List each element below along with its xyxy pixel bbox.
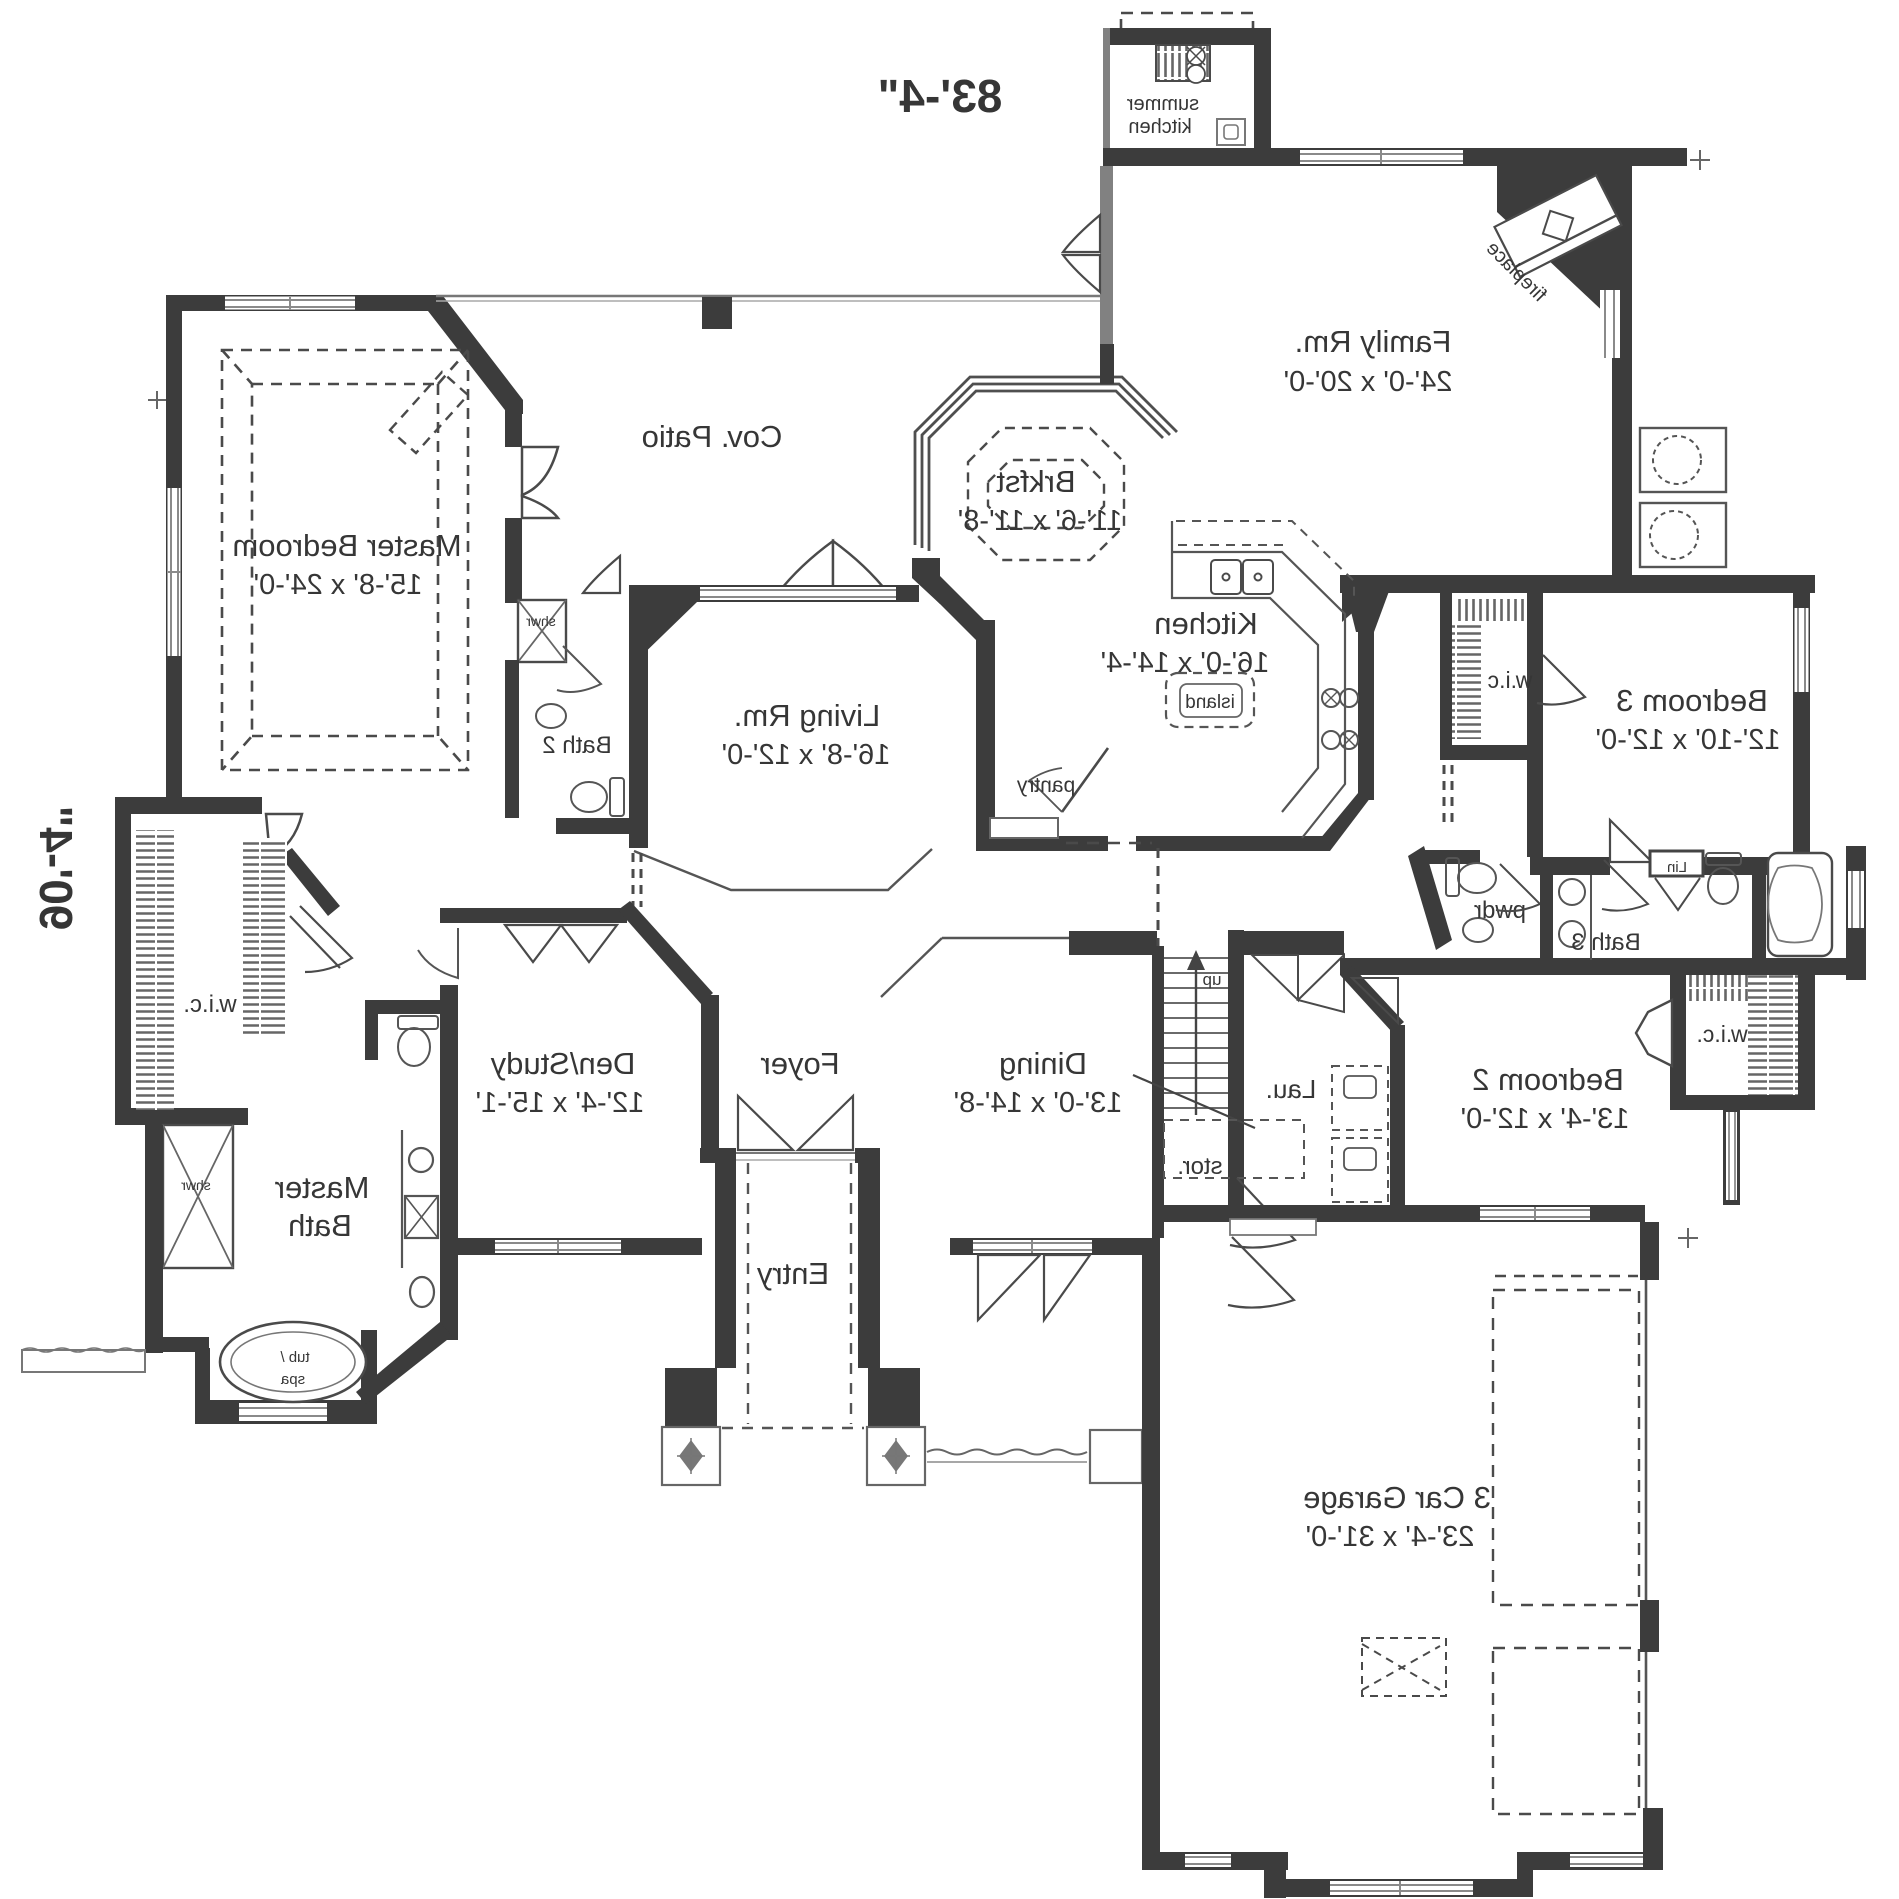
- svg-text:3 Car Garage: 3 Car Garage: [1303, 1480, 1491, 1515]
- svg-text:Family Rm.: Family Rm.: [1295, 324, 1452, 359]
- svg-text:w.i.c.: w.i.c.: [1696, 1021, 1748, 1047]
- svg-text:11'-6' x 11'-8': 11'-6' x 11'-8': [958, 505, 1123, 537]
- svg-text:Bath 2: Bath 2: [542, 732, 611, 759]
- svg-text:13'-4' x 12'-0': 13'-4' x 12'-0': [1461, 1103, 1630, 1135]
- svg-text:tub /: tub /: [280, 1349, 310, 1366]
- svg-text:Bath: Bath: [288, 1208, 352, 1243]
- svg-text:16'-8' x 12'-0': 16'-8' x 12'-0': [722, 739, 891, 771]
- svg-text:Kitchen: Kitchen: [1154, 606, 1257, 641]
- svg-text:23'-4' x 31'-0': 23'-4' x 31'-0': [1306, 1521, 1475, 1553]
- svg-text:w.i.c.: w.i.c.: [183, 991, 237, 1018]
- svg-text:Bedroom 3: Bedroom 3: [1616, 683, 1768, 718]
- svg-text:13'-0' x 14'-8': 13'-0' x 14'-8': [954, 1087, 1123, 1119]
- svg-text:Foyer: Foyer: [760, 1046, 839, 1081]
- svg-text:Den/Study: Den/Study: [490, 1046, 635, 1081]
- svg-text:Dining: Dining: [999, 1046, 1087, 1081]
- svg-text:Master Bedroom: Master Bedroom: [232, 528, 461, 563]
- svg-text:pantry: pantry: [1016, 774, 1075, 797]
- svg-text:shwr: shwr: [181, 1177, 211, 1193]
- svg-text:island: island: [1185, 692, 1235, 713]
- svg-text:shwr: shwr: [526, 613, 556, 629]
- svg-text:up: up: [1203, 970, 1222, 989]
- svg-text:kitchen: kitchen: [1128, 116, 1191, 138]
- svg-text:12'-4' x 15'-1': 12'-4' x 15'-1': [476, 1087, 645, 1119]
- svg-text:Bath 3: Bath 3: [1571, 929, 1640, 956]
- svg-text:Lin: Lin: [1667, 859, 1687, 876]
- svg-text:15'-8' x 24'-0': 15'-8' x 24'-0': [254, 569, 423, 601]
- svg-text:24'-0' x 20'-0': 24'-0' x 20'-0': [1284, 366, 1453, 398]
- svg-text:Master: Master: [275, 1170, 370, 1205]
- svg-text:spa: spa: [280, 1371, 305, 1388]
- svg-text:16'-0' x 14'-4': 16'-0' x 14'-4': [1101, 647, 1270, 679]
- svg-text:Entry: Entry: [756, 1256, 829, 1291]
- svg-text:w.i.c: w.i.c: [1488, 667, 1534, 693]
- svg-text:Bedroom 2: Bedroom 2: [1472, 1062, 1624, 1097]
- svg-text:Brkfst: Brkfst: [996, 464, 1076, 499]
- svg-text:12'-10' x 12'-0': 12'-10' x 12'-0': [1596, 724, 1781, 756]
- svg-text:summer: summer: [1127, 93, 1200, 115]
- svg-text:stor.: stor.: [1177, 1153, 1222, 1180]
- svg-text:Living Rm.: Living Rm.: [734, 698, 880, 733]
- svg-text:Cov. Patio: Cov. Patio: [642, 419, 783, 454]
- svg-text:Lau.: Lau.: [1266, 1074, 1317, 1104]
- svg-text:90'-4": 90'-4": [30, 806, 82, 931]
- svg-text:83'-4": 83'-4": [878, 70, 1003, 122]
